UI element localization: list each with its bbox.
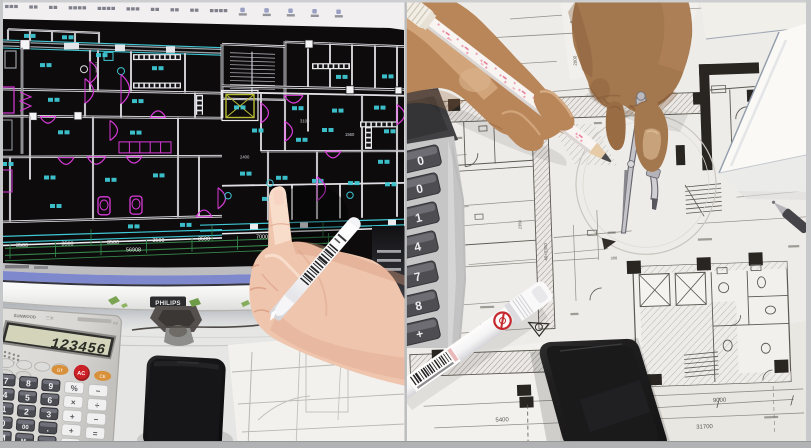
svg-text:3500: 3500 <box>153 238 165 244</box>
svg-text:1560: 1560 <box>345 132 355 137</box>
svg-text:3500: 3500 <box>198 237 210 243</box>
svg-text:2400: 2400 <box>240 155 250 160</box>
svg-text:7000: 7000 <box>256 235 268 241</box>
svg-text:00: 00 <box>22 425 30 431</box>
svg-text:AC: AC <box>77 371 85 378</box>
svg-text:56908: 56908 <box>126 248 141 254</box>
svg-text:GT: GT <box>57 368 64 373</box>
svg-text:6: 6 <box>47 395 53 405</box>
svg-text:PHILIPS: PHILIPS <box>155 300 180 307</box>
svg-text:5: 5 <box>25 392 31 402</box>
svg-text:MJ021: MJ021 <box>95 62 99 73</box>
svg-text:3: 3 <box>46 409 52 419</box>
svg-text:F2: F2 <box>113 322 118 326</box>
svg-text:3100: 3100 <box>300 119 310 124</box>
svg-text:7: 7 <box>3 376 9 386</box>
svg-text:9: 9 <box>48 381 54 391</box>
svg-text:4: 4 <box>2 390 8 400</box>
svg-text:CE: CE <box>99 374 106 379</box>
svg-text:2: 2 <box>24 407 30 417</box>
svg-text:%: % <box>70 384 78 393</box>
svg-text:3500: 3500 <box>62 241 74 247</box>
svg-text:8: 8 <box>26 378 32 388</box>
svg-text:3500: 3500 <box>107 240 119 246</box>
svg-text:3500: 3500 <box>16 243 28 249</box>
